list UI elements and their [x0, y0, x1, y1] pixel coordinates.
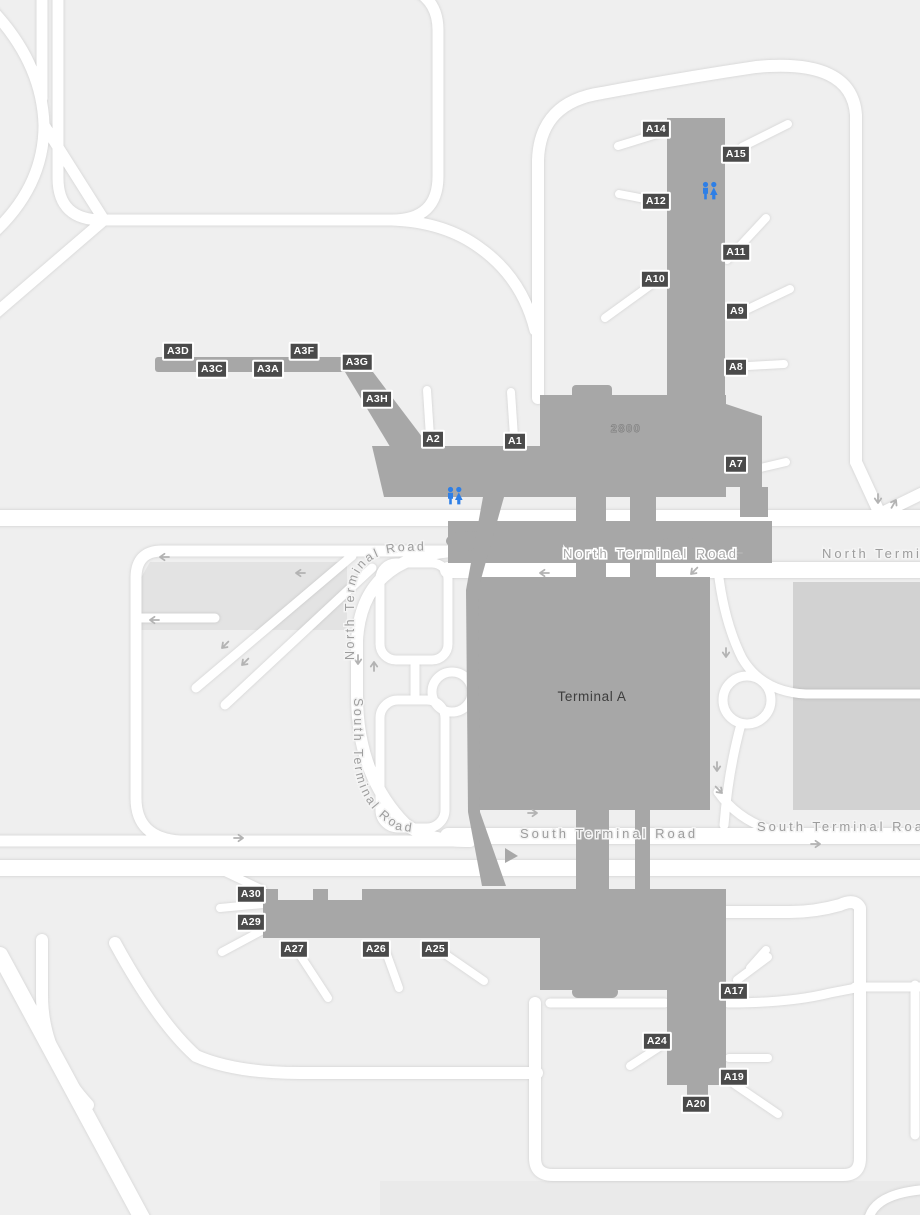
north-connector-2	[630, 495, 656, 581]
gate-label-A20: A20	[681, 1095, 711, 1114]
terminal-a-label: Terminal A	[557, 689, 626, 704]
gate-label-A8: A8	[724, 358, 748, 377]
gate-label-A2: A2	[421, 430, 445, 449]
gate-label-A19: A19	[719, 1068, 749, 1087]
gate-label-A12: A12	[641, 192, 671, 211]
south-terminal-road-label-center: South Terminal Road	[520, 826, 698, 841]
gate-label-A14: A14	[641, 120, 671, 139]
gate-label-A10: A10	[640, 270, 670, 289]
gate-label-A3G: A3G	[341, 353, 374, 372]
east-concourse-ext	[726, 404, 762, 487]
building-2800	[540, 395, 726, 497]
west-corridor	[466, 590, 480, 812]
north-terminal-road-label-east: North Terminal Road	[822, 546, 920, 561]
gate-label-A25: A25	[420, 940, 450, 959]
gate-label-A26: A26	[361, 940, 391, 959]
gate-label-A7: A7	[724, 455, 748, 474]
gate-label-A1: A1	[503, 432, 527, 451]
gate-label-A3C: A3C	[196, 360, 228, 379]
gate-label-A3H: A3H	[361, 390, 393, 409]
gate-label-A9: A9	[725, 302, 749, 321]
map-canvas: North Terminal Road North Terminal Road …	[0, 0, 920, 1215]
south-apron	[380, 1181, 920, 1215]
gate-label-A15: A15	[721, 145, 751, 164]
gate-label-A29: A29	[236, 913, 266, 932]
south-connector-1	[576, 808, 609, 892]
south-concourse-bar	[263, 900, 540, 938]
airport-terminal-map: North Terminal Road North Terminal Road …	[0, 0, 920, 1215]
north-terminal-road-label-center: North Terminal Road	[563, 546, 739, 561]
south-connector-2	[635, 808, 650, 892]
building-number-label: 2800	[611, 423, 641, 435]
gate-label-A24: A24	[642, 1032, 672, 1051]
gate-label-A27: A27	[279, 940, 309, 959]
north-connector-1	[576, 495, 606, 581]
south-terminal-road-label-east: South Terminal Road	[757, 819, 920, 834]
a7-stub	[740, 487, 768, 517]
south-concourse-block	[540, 889, 726, 990]
gate-label-A3F: A3F	[289, 342, 320, 361]
gate-label-A30: A30	[236, 885, 266, 904]
gate-label-A3D: A3D	[162, 342, 194, 361]
gate-label-A17: A17	[719, 982, 749, 1001]
gate-label-A3A: A3A	[252, 360, 284, 379]
south-pier	[667, 990, 726, 1085]
north-pier	[667, 118, 725, 408]
gate-label-A11: A11	[721, 243, 751, 262]
